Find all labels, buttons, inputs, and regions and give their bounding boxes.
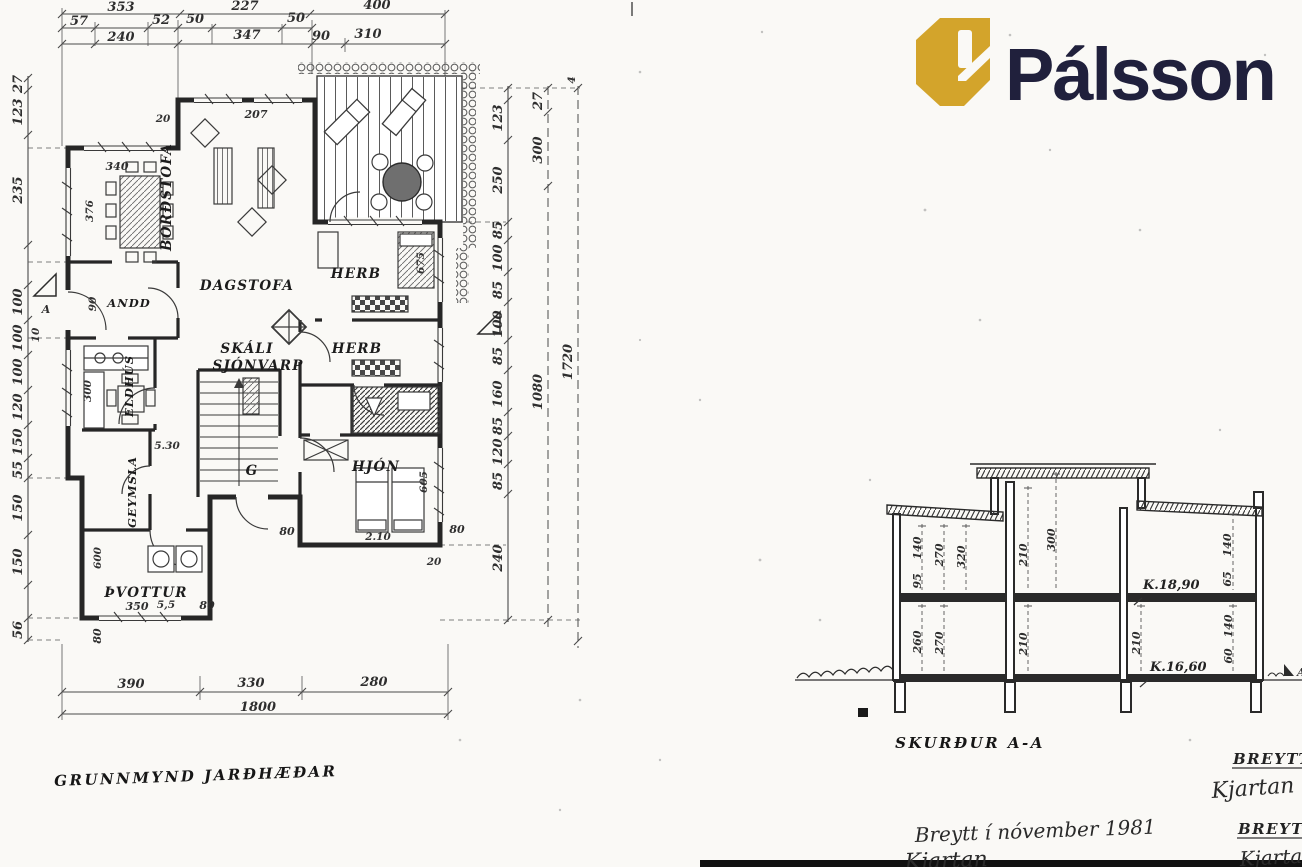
section-dim-lines — [922, 472, 1233, 672]
patio-chair — [416, 194, 432, 210]
dim-label: 80 — [279, 525, 295, 538]
dim-label: 85 — [491, 347, 506, 365]
dim-label: 120 — [491, 438, 506, 465]
deck-hedge-right — [463, 70, 476, 248]
fireplace — [272, 310, 306, 344]
dim-label: 310 — [354, 27, 381, 42]
dim-label: 80 — [449, 523, 465, 536]
room-label: SJÓNVARP — [212, 357, 303, 374]
parapet — [1254, 492, 1263, 508]
dining-table — [120, 176, 160, 248]
dim-label: 605 — [418, 471, 430, 493]
dim-label: 280 — [359, 675, 387, 690]
dim-label: 85 — [491, 281, 506, 299]
window — [328, 216, 422, 227]
dim-label: 210 — [1017, 632, 1030, 656]
dim-label: 140 — [1222, 614, 1235, 637]
post-left — [991, 478, 998, 514]
room-label: DAGSTOFA — [199, 278, 294, 294]
room-label: G — [246, 463, 259, 479]
level-label: K.18,90 — [1142, 578, 1200, 593]
room-label: ELDHÚS — [122, 355, 136, 418]
dim-label: 250 — [491, 166, 506, 194]
window — [62, 168, 73, 256]
dim-label: 80 — [199, 599, 215, 612]
room-label: HERB — [331, 341, 382, 357]
dim-label: 85 — [491, 417, 506, 435]
dim-label: 20 — [155, 113, 171, 125]
footing — [1005, 682, 1015, 712]
dim-label: 85 — [491, 221, 506, 239]
dim-label: 300 — [531, 136, 546, 163]
level-label: K.16,60 — [1149, 660, 1207, 675]
patio-table — [383, 163, 421, 201]
dim-label: 210 — [1130, 631, 1143, 655]
section-drawing: 140 95 270 320 210 300 140 65 260 270 21… — [795, 464, 1302, 752]
dim-label: 52 — [152, 13, 170, 28]
section-title: SKURÐUR A-A — [895, 734, 1045, 752]
door-arc-andd — [148, 288, 178, 318]
dim-label: 5.30 — [154, 440, 180, 452]
dim-label: 600 — [92, 546, 104, 569]
door-arc-herb — [300, 332, 330, 362]
dim-label: 300 — [1045, 528, 1058, 551]
dim-label: 100 — [11, 288, 26, 315]
dim-label: 90 — [87, 296, 99, 311]
scan-edge-bar — [700, 860, 1302, 867]
dim-label: 1800 — [240, 700, 276, 715]
dim-label: 5,5 — [157, 599, 175, 611]
room-label: BORÐSTOFA — [159, 143, 175, 252]
dim-label: 300 — [82, 379, 94, 402]
dim-label: 353 — [107, 0, 134, 15]
dim-label: 1080 — [531, 374, 546, 410]
dim-label: 340 — [106, 160, 129, 173]
dim-label: 140 — [1221, 533, 1234, 556]
floor-plan: A BORÐSTOFA DAGSTOFA ANDD SKÁLI SJÓNVARP… — [34, 62, 500, 644]
bathroom-fixtures — [352, 387, 440, 433]
patio-chair — [372, 154, 388, 170]
dim-label: 390 — [117, 677, 144, 692]
room-label: HJÓN — [351, 458, 400, 475]
dim-label: 27 — [11, 75, 26, 94]
logo: Pálsson — [916, 18, 1275, 116]
signature-fragment: Kjartan — [1238, 843, 1302, 867]
beds-hjon — [304, 440, 424, 532]
floor-slab-ground — [893, 674, 1263, 682]
dim-label: 350 — [126, 600, 149, 613]
dim-label: 347 — [233, 28, 260, 43]
section-arrow-icon — [34, 274, 56, 296]
wall-inner — [1120, 508, 1127, 680]
dim-label: 123 — [491, 104, 506, 131]
revision-label: BREYTT — [1232, 750, 1302, 768]
deck-hedge-lower — [456, 248, 469, 303]
dim-label: 100 — [11, 324, 26, 351]
door-arc-hjon — [300, 438, 334, 472]
dim-label: 675 — [415, 252, 427, 274]
deck-hedge-top — [298, 62, 480, 74]
roof-right — [1137, 501, 1262, 516]
dim-label: 55 — [11, 461, 26, 479]
dim-label: 85 — [491, 472, 506, 490]
door-gap — [146, 466, 154, 494]
dim-label: 95 — [911, 573, 924, 588]
door-gap — [64, 290, 73, 330]
dim-label: 140 — [911, 536, 924, 559]
dim-label: 150 — [11, 428, 26, 455]
section-cut-label: A — [41, 303, 51, 316]
dim-label: 240 — [491, 544, 506, 572]
drawing-canvas: Pálsson 353 227 400 57 52 50 50 240 347 … — [0, 0, 1302, 867]
armchair — [238, 208, 266, 236]
window — [62, 350, 73, 426]
door-gap — [236, 493, 268, 501]
end-arrow-icon — [1284, 664, 1294, 676]
room-label: SKÁLI — [220, 341, 273, 357]
shelf — [214, 148, 232, 204]
armchair — [191, 119, 219, 147]
dim-label: 2.10 — [364, 531, 391, 543]
dim-label: 56 — [11, 621, 26, 639]
roof-center-beam — [977, 468, 1149, 478]
wall-center — [1006, 482, 1014, 680]
dim-label: 50 — [186, 12, 204, 27]
footing — [1251, 682, 1261, 712]
logo-counter — [958, 30, 972, 68]
dim-label: 100 — [11, 358, 26, 385]
room-label: HERB — [330, 266, 381, 282]
window — [434, 448, 445, 522]
dim-label: 400 — [363, 0, 390, 13]
end-squiggle — [1268, 673, 1284, 676]
wardrobe — [352, 360, 400, 376]
dim-label: 60 — [1222, 648, 1235, 664]
patio-chair — [417, 155, 433, 171]
handwriting: Breytt í nóvember 1981 Kjartan BREYTT Kj… — [903, 750, 1302, 867]
window — [99, 612, 181, 623]
wall-left — [893, 514, 900, 680]
dim-label: 260 — [911, 630, 924, 654]
dim-label: 4 — [566, 76, 578, 83]
dim-label: 330 — [237, 676, 264, 691]
revision-label: BREYTT — [1237, 820, 1302, 838]
laundry-machines — [148, 546, 202, 572]
dim-label: 270 — [933, 631, 946, 655]
patio-chair — [371, 194, 387, 210]
dim-label: 240 — [106, 30, 134, 45]
scan-artifacts — [459, 2, 1302, 867]
wardrobe — [352, 296, 408, 312]
dim-label: 150 — [11, 494, 26, 521]
dim-label: 150 — [11, 548, 26, 575]
dim-label: 376 — [84, 199, 96, 222]
section-end-marker: A — [1268, 664, 1302, 679]
brand-wordmark: Pálsson — [1005, 33, 1275, 116]
dim-label: 120 — [11, 393, 26, 420]
signature-right: Kjartan S — [1210, 772, 1302, 804]
tv-cabinet — [243, 378, 259, 414]
deck — [298, 62, 480, 303]
doors — [64, 192, 385, 566]
bottom-dimension-chain: 390 330 280 1800 — [58, 644, 452, 720]
dim-label: 100 — [491, 244, 506, 271]
dim-label: 270 — [933, 543, 946, 567]
dim-label: 90 — [312, 29, 330, 44]
dim-label: 27 — [531, 92, 546, 111]
dim-label: 320 — [955, 545, 968, 568]
wall-right — [1256, 507, 1263, 680]
stairs — [200, 378, 278, 486]
window — [194, 94, 242, 105]
dim-label: 207 — [244, 108, 268, 121]
speckles — [459, 31, 1267, 811]
dim-label: 10 — [30, 327, 42, 342]
dim-label: 1720 — [561, 344, 576, 380]
footing — [1121, 682, 1131, 712]
handwritten-note: Breytt í nóvember 1981 — [913, 815, 1156, 847]
roof-left — [887, 505, 1003, 521]
signature: Kjartan — [903, 847, 988, 867]
window — [84, 142, 166, 153]
room-label: GEYMSLA — [125, 456, 139, 528]
room-label: ANDD — [106, 296, 150, 310]
plan-title: GRUNNMYND JARÐHÆÐAR — [54, 762, 338, 790]
window — [434, 328, 445, 382]
dim-label: 123 — [11, 98, 26, 125]
ground-squiggle — [797, 666, 893, 678]
logo-mark-icon — [916, 18, 990, 106]
dim-label: 235 — [11, 176, 26, 204]
window — [434, 238, 445, 302]
floor-slab-mid — [893, 593, 1263, 602]
scanned-blueprint-page: Pálsson 353 227 400 57 52 50 50 240 347 … — [0, 0, 1302, 867]
dim-label: 20 — [426, 556, 442, 568]
scan-blot — [858, 708, 868, 717]
footing — [895, 682, 905, 712]
dim-label: 160 — [491, 380, 506, 407]
dim-label: 210 — [1017, 543, 1030, 567]
dim-label: 50 — [287, 11, 305, 26]
dim-label: 65 — [1221, 571, 1234, 586]
dim-label: 227 — [230, 0, 258, 14]
door-arc-hall — [236, 497, 268, 529]
dim-label: 57 — [70, 14, 88, 29]
section-end-label: A — [1296, 666, 1302, 679]
window — [254, 94, 302, 105]
dim-label: 80 — [91, 628, 104, 644]
